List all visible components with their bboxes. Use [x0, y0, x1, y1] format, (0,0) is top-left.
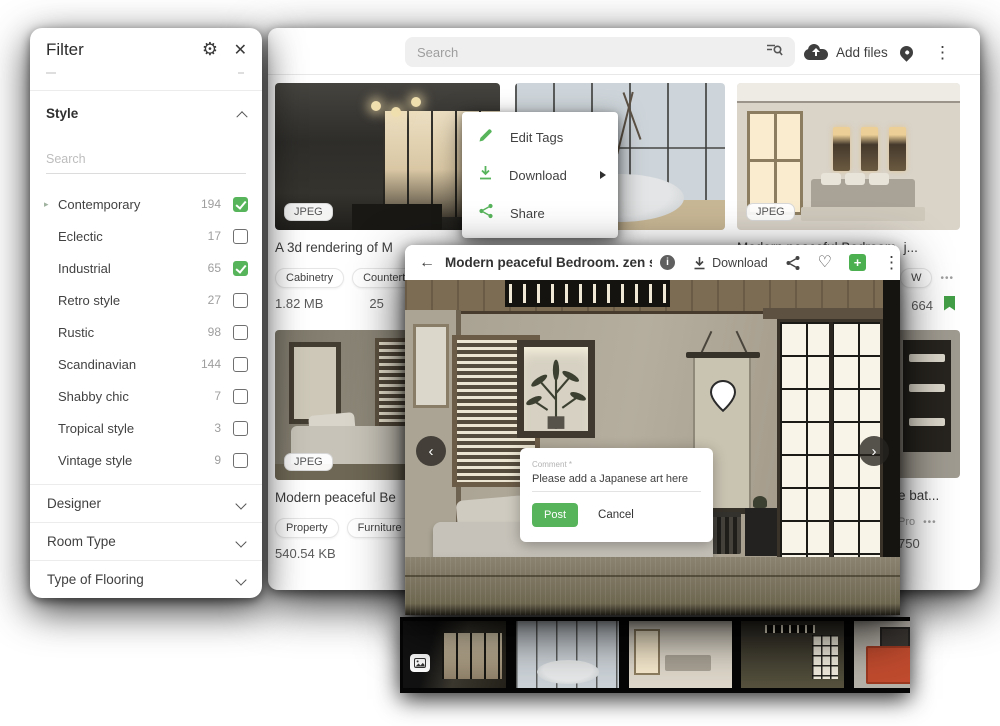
style-search-input[interactable]: Search — [46, 150, 246, 174]
filter-item-industrial[interactable]: Industrial 65 — [30, 252, 262, 284]
section-type-of-flooring[interactable]: Type of Flooring — [30, 560, 262, 598]
search-input[interactable]: Search — [405, 37, 795, 67]
section-label: Designer — [47, 496, 101, 511]
scrolled-row-hint — [238, 72, 244, 74]
comment-field-label: Comment * — [532, 460, 701, 469]
side-table — [745, 508, 777, 556]
back-arrow-icon[interactable]: ← — [419, 254, 435, 272]
more-tags-icon[interactable]: ••• — [923, 517, 937, 528]
pencil-icon — [478, 127, 494, 148]
filmstrip-thumb-roundbed[interactable] — [516, 621, 619, 688]
chevron-up-icon — [236, 111, 247, 122]
filter-item-count: 7 — [214, 389, 221, 403]
filter-item-label: Vintage style — [58, 453, 214, 468]
tag-pill[interactable]: Property — [275, 518, 339, 538]
filter-item-label: Contemporary — [58, 197, 201, 212]
image-stack-icon — [410, 654, 430, 672]
topbar: Search Add files ⋮ — [268, 28, 980, 75]
filter-item-label: Rustic — [58, 325, 208, 340]
wood-beam — [763, 308, 900, 319]
filter-item-count: 27 — [208, 293, 221, 307]
filter-item-count: 144 — [201, 357, 221, 371]
menu-item-share[interactable]: Share — [462, 194, 618, 232]
filter-item-label: Shabby chic — [58, 389, 214, 404]
expand-caret-icon[interactable]: ▸ — [44, 199, 58, 210]
modal-overflow-icon[interactable]: ⋮ — [883, 254, 900, 271]
comment-input[interactable]: Please add a Japanese art here — [532, 473, 701, 492]
checkbox[interactable] — [233, 357, 248, 372]
divider — [30, 90, 262, 91]
comment-pin-marker[interactable] — [710, 380, 736, 417]
gear-icon[interactable]: ⚙ — [202, 39, 218, 60]
checkbox[interactable] — [233, 197, 248, 212]
asset-context-menu: Edit Tags Download Share — [462, 112, 618, 238]
filter-panel-title: Filter — [46, 40, 84, 60]
menu-item-label: Share — [510, 206, 545, 221]
tag-pill[interactable]: W — [900, 268, 932, 288]
location-pin-icon — [897, 43, 915, 61]
filter-item-count: 9 — [214, 453, 221, 467]
chevron-left-icon: ‹ — [429, 443, 434, 460]
section-label: Type of Flooring — [47, 572, 144, 587]
submenu-caret-icon — [600, 171, 606, 179]
filter-item-label: Eclectic — [58, 229, 208, 244]
download-icon — [478, 165, 493, 185]
filter-item-label: Industrial — [58, 261, 208, 276]
menu-item-edit-tags[interactable]: Edit Tags — [462, 118, 618, 156]
filmstrip-thumb-red-cabinet[interactable] — [854, 621, 910, 688]
tatami-floor — [405, 557, 900, 615]
filter-item-count: 3 — [214, 421, 221, 435]
checkbox[interactable] — [233, 325, 248, 340]
filter-item-vintage-style[interactable]: Vintage style 9 — [30, 444, 262, 476]
chevron-down-icon — [235, 574, 246, 585]
style-section-label: Style — [46, 106, 78, 121]
checkbox[interactable] — [233, 261, 248, 276]
screenshot-stage: { "colors": { "accent_green": "#57B45B",… — [0, 0, 1000, 726]
close-icon[interactable]: ✕ — [234, 40, 247, 60]
filter-item-label: Retro style — [58, 293, 208, 308]
filmstrip-thumb-zen[interactable] — [741, 621, 844, 688]
carousel-filmstrip — [400, 617, 910, 693]
vertical-dots-icon: ⋮ — [934, 44, 951, 61]
collapsed-filter-sections: Designer Room Type Type of Flooring — [30, 484, 262, 598]
topbar-overflow-button[interactable]: ⋮ — [934, 37, 951, 67]
checkbox[interactable] — [233, 293, 248, 308]
file-size: 1.82 MB — [275, 296, 323, 311]
skylight — [505, 280, 670, 307]
menu-item-label: Edit Tags — [510, 130, 563, 145]
add-files-button[interactable]: Add files — [804, 37, 888, 67]
plant-alcove — [517, 340, 595, 438]
chevron-down-icon — [235, 536, 246, 547]
next-arrow-button[interactable]: › — [859, 436, 889, 466]
filter-item-count: 17 — [208, 229, 221, 243]
asset-thumbnail[interactable]: JPEG — [737, 83, 960, 230]
favorite-heart-icon[interactable]: ♡ — [818, 255, 832, 271]
filter-item-rustic[interactable]: Rustic 98 — [30, 316, 262, 348]
modal-header: ← Modern peaceful Bedroom. zen style bed… — [405, 245, 900, 280]
add-to-collection-icon[interactable]: + — [849, 254, 866, 271]
style-section-header[interactable]: Style — [46, 106, 246, 121]
filmstrip-thumb-kitchen[interactable] — [403, 621, 506, 688]
more-tags-icon[interactable]: ••• — [940, 273, 954, 284]
section-room-type[interactable]: Room Type — [30, 522, 262, 560]
format-badge: JPEG — [284, 203, 333, 221]
filter-item-contemporary[interactable]: ▸ Contemporary 194 — [30, 188, 262, 220]
filter-item-label: Tropical style — [58, 421, 214, 436]
filter-item-retro-style[interactable]: Retro style 27 — [30, 284, 262, 316]
menu-item-label: Download — [509, 168, 567, 183]
filter-item-count: 98 — [208, 325, 221, 339]
checkbox[interactable] — [233, 421, 248, 436]
scrolled-row-hint — [46, 72, 56, 74]
cancel-button[interactable]: Cancel — [598, 509, 634, 521]
bookmark-icon[interactable] — [943, 296, 956, 314]
section-label: Room Type — [47, 534, 116, 549]
asset-preview-modal: ← Modern peaceful Bedroom. zen style bed… — [405, 245, 900, 615]
comment-popup: Comment * Please add a Japanese art here… — [520, 448, 713, 542]
search-placeholder: Search — [417, 45, 766, 60]
modal-title: Modern peaceful Bedroom. zen style bed..… — [445, 255, 652, 270]
file-meta-fragment: 25 — [369, 296, 383, 311]
location-pin-button[interactable] — [900, 37, 913, 67]
filter-item-count: 194 — [201, 197, 221, 211]
checkbox[interactable] — [233, 453, 248, 468]
format-badge: JPEG — [284, 453, 333, 471]
filter-item-count: 65 — [208, 261, 221, 275]
upload-cloud-icon — [804, 44, 828, 61]
file-size: 540.54 KB — [275, 546, 336, 561]
modal-download-button[interactable]: Download — [693, 256, 768, 270]
file-meta-fragment: 750 — [898, 536, 920, 551]
download-label: Download — [712, 256, 768, 270]
checkbox[interactable] — [233, 229, 248, 244]
style-filter-list: ▸ Contemporary 194 Eclectic 17 Industria… — [30, 188, 262, 476]
search-filter-icon[interactable] — [766, 42, 783, 62]
chevron-right-icon: › — [872, 443, 877, 460]
prev-arrow-button[interactable]: ‹ — [416, 436, 446, 466]
checkbox[interactable] — [233, 389, 248, 404]
add-files-label: Add files — [836, 45, 888, 60]
file-meta-fragment: 664 — [911, 298, 933, 313]
filter-item-label: Scandinavian — [58, 357, 201, 372]
style-search-placeholder: Search — [46, 152, 86, 166]
filter-panel: Filter ⚙ ✕ Style Search ▸ Contemporary 1… — [30, 28, 262, 598]
post-button[interactable]: Post — [532, 503, 578, 527]
filter-item-scandinavian[interactable]: Scandinavian 144 — [30, 348, 262, 380]
section-designer[interactable]: Designer — [30, 484, 262, 522]
format-badge: JPEG — [746, 203, 795, 221]
tag-fragment[interactable]: Pro — [898, 516, 915, 528]
preview-image-zen-bedroom: ‹ › Comment * Please add a Japanese art … — [405, 280, 900, 615]
share-icon — [478, 203, 494, 224]
filter-item-shabby-chic[interactable]: Shabby chic 7 — [30, 380, 262, 412]
modal-share-icon[interactable] — [785, 255, 801, 271]
tag-pill[interactable]: Furniture — [347, 518, 413, 538]
menu-item-download[interactable]: Download — [462, 156, 618, 194]
filmstrip-thumb-bedroom[interactable] — [629, 621, 732, 688]
info-icon[interactable]: i — [660, 255, 675, 270]
filter-item-eclectic[interactable]: Eclectic 17 — [30, 220, 262, 252]
filter-item-tropical-style[interactable]: Tropical style 3 — [30, 412, 262, 444]
chevron-down-icon — [235, 498, 246, 509]
tag-pill[interactable]: Cabinetry — [275, 268, 344, 288]
